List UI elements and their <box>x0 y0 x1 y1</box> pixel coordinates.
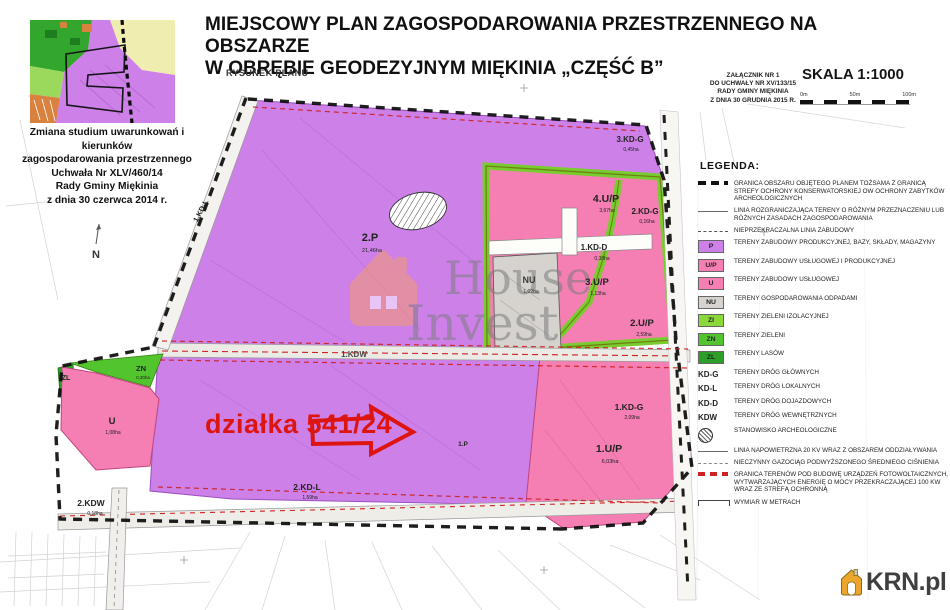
zone-area-2kdw: 0,18ha <box>87 511 103 517</box>
zi-zone-swatch: ZI <box>698 314 724 327</box>
attachment-line-3: RADY GMINY MIĘKINIA <box>688 88 818 96</box>
scale-bar-graphic <box>800 100 910 105</box>
legend-item-dimension: WYMIAR W METRACH <box>698 499 948 507</box>
zone-area-2p: 21,46ha <box>362 248 383 254</box>
watermark-text-2: Invest <box>406 295 559 352</box>
north-indicator: N <box>92 224 101 261</box>
legend-item-kdd: KD-D TERENY DRÓG DOJAZDOWYCH <box>698 398 948 408</box>
nu-zone-swatch: NU <box>698 296 724 309</box>
zone-label-2kdw: 2.KDW <box>77 498 105 508</box>
legend-item-kdl: KD-L TERENY DRÓG LOKALNYCH <box>698 383 948 393</box>
krn-logo[interactable]: KRN.pl <box>840 568 946 597</box>
zone-label-1kdg: 1.KD-G <box>615 402 644 412</box>
legend-title: LEGENDA: <box>700 160 760 172</box>
zone-area-u: 1,08ha <box>105 430 121 436</box>
zone-area-1up: 6,03ha <box>602 459 620 465</box>
legend-item-up: U/P TERENY ZABUDOWY USŁUGOWEJ I PRODUKCY… <box>698 258 948 272</box>
p-zone-swatch: P <box>698 240 724 253</box>
inset-map <box>30 20 175 123</box>
zone-area-3up: 1,13ha <box>590 291 606 297</box>
archaeological-site-swatch <box>698 428 713 443</box>
zone-label-1p-small: 1.P <box>458 441 468 448</box>
attachment-line-1: ZAŁĄCZNIK NR 1 <box>688 72 818 80</box>
legend-item-kdg: KD-G TERENY DRÓG GŁÓWNYCH <box>698 369 948 379</box>
kdl-code: KD-L <box>698 384 717 393</box>
zone-area-2up: 2,59ha <box>636 332 652 338</box>
gas-pipeline-swatch <box>698 463 728 464</box>
zone-label-1kdw: 1.KDW <box>341 350 367 359</box>
zone-label-2up: 2.U/P <box>630 318 654 329</box>
legend-item-powerline: LINIA NAPOWIETRZNA 20 KV WRAZ Z OBSZAREM… <box>698 447 948 455</box>
legend-item-zn: ZN TERENY ZIELENI <box>698 332 948 346</box>
attachment-line-2: DO UCHWAŁY NR XV/133/15 <box>688 80 818 88</box>
legend-item-plan-boundary: GRANICA OBSZARU OBJĘTEGO PLANEM TOŻSAMA … <box>698 180 948 203</box>
krn-house-icon <box>840 569 863 596</box>
up-zone-swatch: U/P <box>698 259 724 272</box>
zone-label-2p: 2.P <box>362 232 379 244</box>
zone-area-zn: 0,30ha <box>136 375 150 380</box>
zl-zone-swatch: ZL <box>698 351 724 364</box>
zone-label-nu: NU <box>523 275 536 285</box>
drawing-subtitle: RYSUNEK PLANU <box>226 68 308 78</box>
kdg-code: KD-G <box>698 370 718 379</box>
zone-area-1kdd: 0,38ha <box>594 256 610 262</box>
zone-area-2kdl: 1,59ha <box>302 495 318 501</box>
attachment-line-4: Z DNIA 30 GRUDNIA 2015 R. <box>688 97 818 105</box>
powerline-swatch <box>698 451 728 452</box>
u-zone-swatch: U <box>698 277 724 290</box>
kdd-code: KD-D <box>698 399 718 408</box>
legend-item-dividing-line: LINIA ROZGRANICZAJĄCA TERENY O RÓŻNYM PR… <box>698 207 948 222</box>
north-label: N <box>92 249 100 261</box>
zone-label-zn: ZN <box>136 364 146 373</box>
legend-item-nu: NU TERENY GOSPODAROWANIA ODPADAMI <box>698 295 948 309</box>
inset-caption: Zmiana studium uwarunkowań i kierunków z… <box>6 126 208 208</box>
zone-label-zl: ZL <box>62 375 71 382</box>
scale-bar: 0m 50m 100m <box>800 92 916 105</box>
zone-area-1kdg: 2,09ha <box>624 415 640 421</box>
scale-label: SKALA 1:1000 <box>802 66 904 83</box>
zone-label-u: U <box>109 416 116 427</box>
zone-area-4up: 3,67ha <box>599 208 615 214</box>
legend-item-zi: ZI TERENY ZIELENI IZOLACYJNEJ <box>698 313 948 327</box>
photovoltaic-boundary-swatch <box>698 472 728 476</box>
legend-item-gas-pipeline: NIECZYNNY GAZOCIĄG PODWYŻSZONEGO ŚREDNIE… <box>698 459 948 467</box>
zone-area-2kdg: 0,16ha <box>639 219 655 225</box>
legend-item-u: U TERENY ZABUDOWY USŁUGOWEJ <box>698 276 948 290</box>
legend-item-photovoltaic: GRANICA TERENÓW POD BUDOWĘ URZĄDZEŃ FOTO… <box>698 471 948 494</box>
zone-label-3kdg: 3.KD-G <box>616 135 643 144</box>
dividing-line-swatch <box>698 211 728 212</box>
legend-item-p: P TERENY ZABUDOWY PRODUKCYJNEJ, BAZY, SK… <box>698 239 948 253</box>
plan-sheet: N House Invest 2.P 21,46ha 3.KD-G 0,45ha… <box>0 0 950 610</box>
kdw-code: KDW <box>698 413 717 422</box>
plan-boundary-swatch <box>698 181 728 185</box>
krn-logo-text: KRN.pl <box>866 568 946 597</box>
scale-tick-50: 50m <box>850 92 861 98</box>
legend-item-zl: ZL TERENY LASÓW <box>698 350 948 364</box>
zone-label-2kdl: 2.KD-L <box>293 482 320 492</box>
building-line-swatch <box>698 231 728 232</box>
attachment-note: ZAŁĄCZNIK NR 1 DO UCHWAŁY NR XV/133/15 R… <box>688 72 818 105</box>
zone-area-nu: 1,02ha <box>523 289 539 295</box>
legend-item-kdw: KDW TERENY DRÓG WEWNĘTRZNYCH <box>698 412 948 422</box>
scale-tick-100: 100m <box>902 92 916 98</box>
dimension-swatch <box>698 500 730 506</box>
zn-zone-swatch: ZN <box>698 333 724 346</box>
legend-item-building-line: NIEPRZEKRACZALNA LINIA ZABUDOWY <box>698 227 948 235</box>
legend: GRANICA OBSZARU OBJĘTEGO PLANEM TOŻSAMA … <box>698 180 948 511</box>
zone-label-2kdg: 2.KD-G <box>631 207 658 216</box>
plot-highlight-text: działka 541/24 <box>205 409 392 439</box>
zone-label-3up: 3.U/P <box>585 277 609 288</box>
title-line-1: MIEJSCOWY PLAN ZAGOSPODAROWANIA PRZESTRZ… <box>205 14 925 58</box>
zone-label-1up: 1.U/P <box>596 443 622 455</box>
zone-label-1kdd: 1.KD-D <box>581 243 608 252</box>
scale-tick-0: 0m <box>800 92 808 98</box>
zone-area-3kdg: 0,45ha <box>623 147 639 153</box>
zone-label-4up: 4.U/P <box>593 193 619 205</box>
legend-item-archaeological: STANOWISKO ARCHEOLOGICZNE <box>698 427 948 443</box>
